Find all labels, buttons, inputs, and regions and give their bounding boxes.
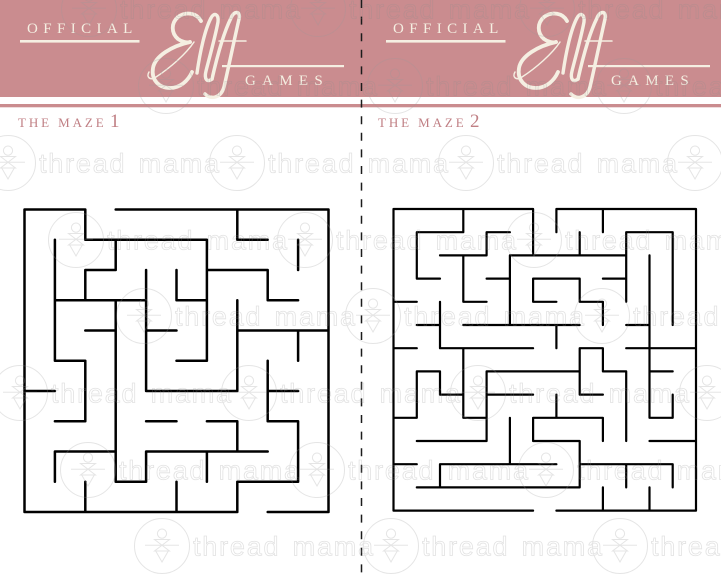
svg-text:1: 1	[110, 111, 120, 132]
svg-text:THE MAZE: THE MAZE	[18, 115, 107, 130]
svg-text:2: 2	[470, 111, 480, 132]
svg-text:THE MAZE: THE MAZE	[378, 115, 467, 130]
